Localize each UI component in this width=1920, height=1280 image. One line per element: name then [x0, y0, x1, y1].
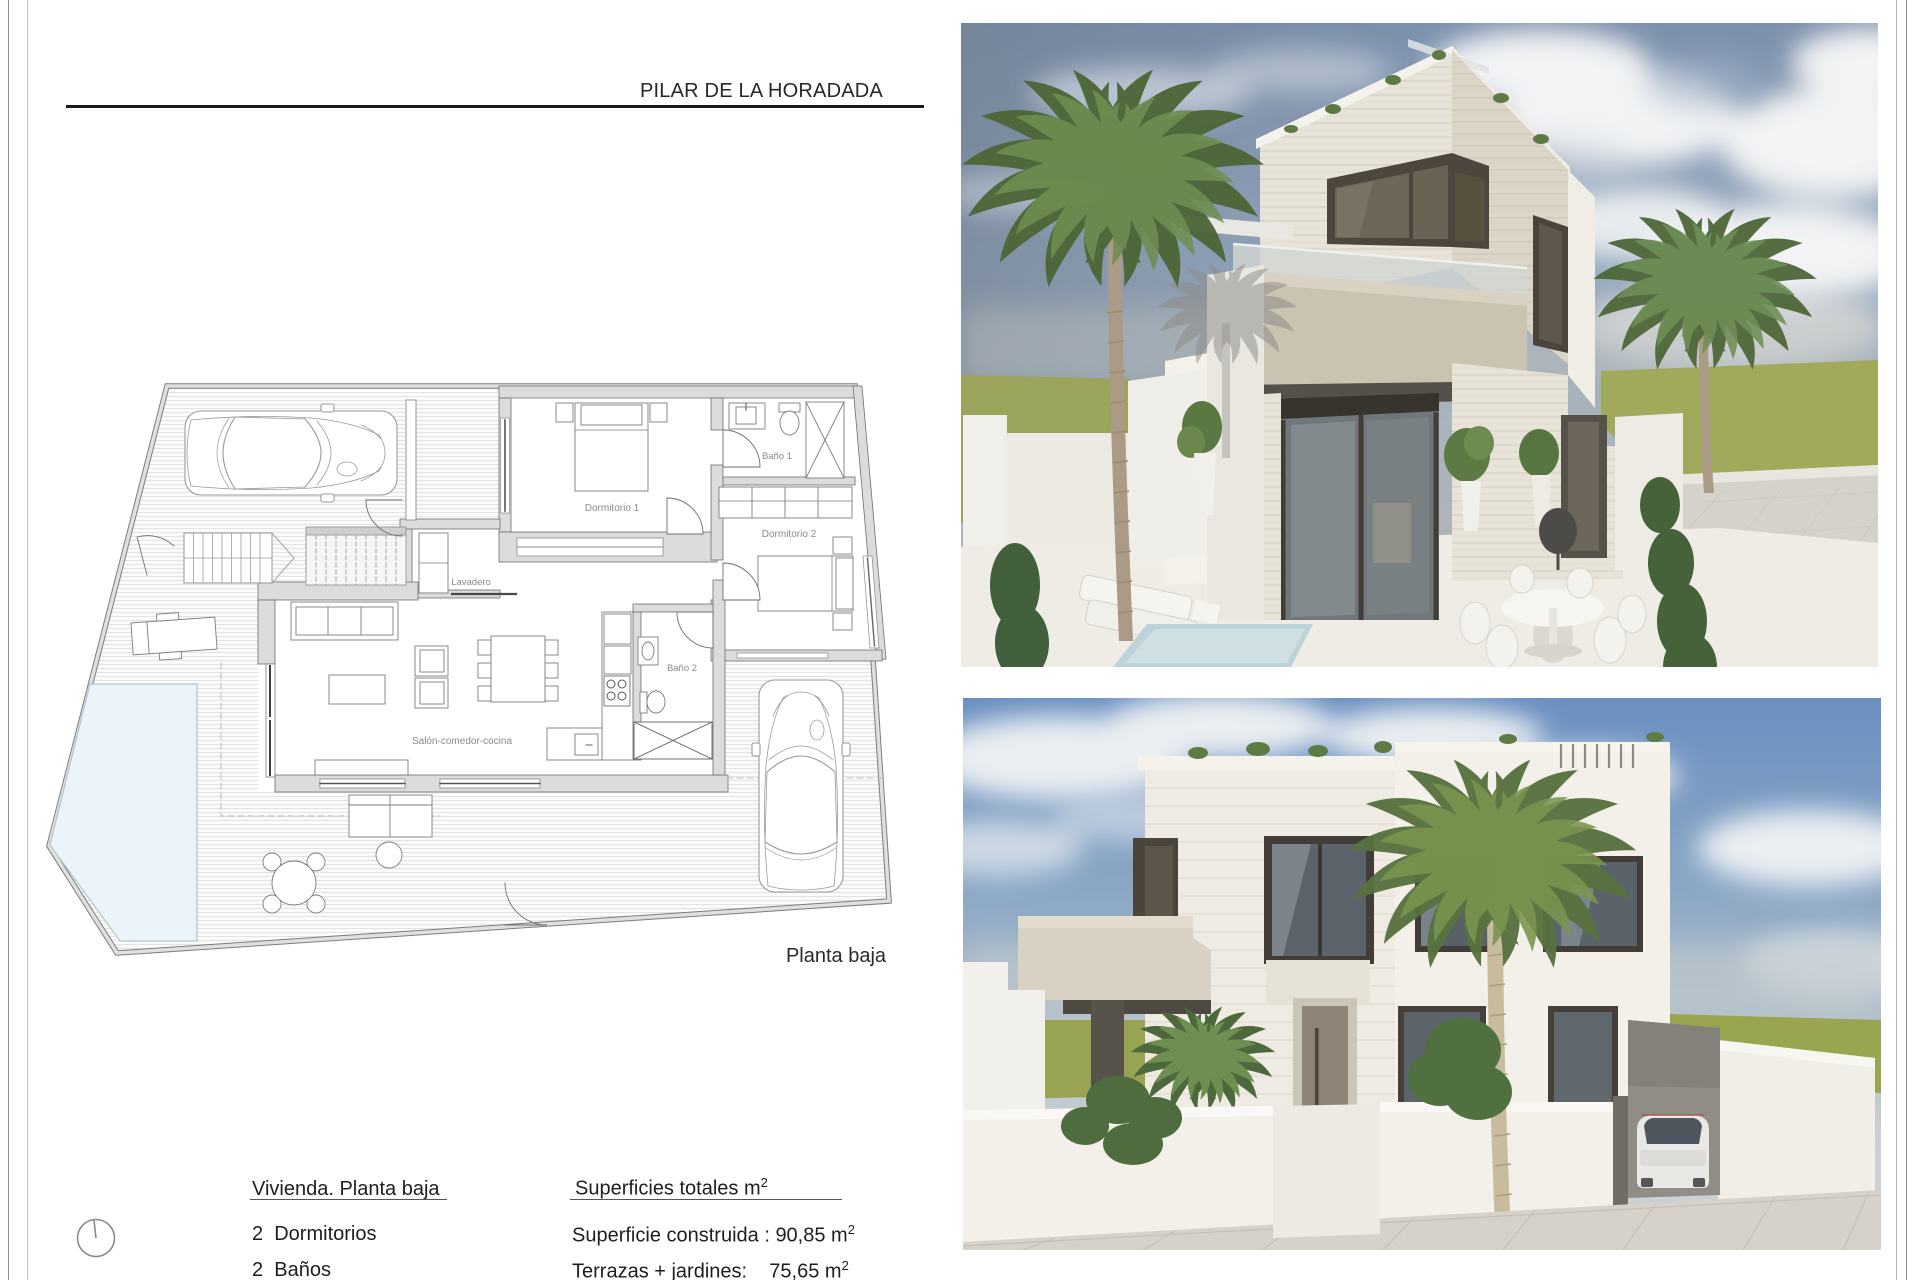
svg-text:Baño 1: Baño 1 [762, 451, 792, 462]
svg-text:Baño 2: Baño 2 [667, 663, 697, 674]
svg-text:Dormitorio 2: Dormitorio 2 [762, 529, 817, 540]
svg-text:Planta baja: Planta baja [786, 945, 887, 967]
svg-text:Salón-comedor-cocina: Salón-comedor-cocina [412, 736, 512, 747]
svg-text:Dormitorio 1: Dormitorio 1 [585, 503, 640, 514]
svg-text:Lavadero: Lavadero [451, 577, 491, 588]
